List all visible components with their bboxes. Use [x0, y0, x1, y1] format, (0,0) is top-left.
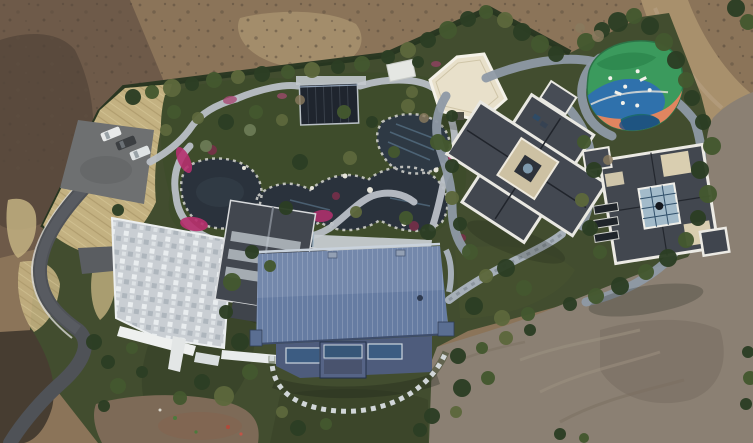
tree	[586, 162, 602, 178]
tree	[588, 288, 604, 304]
tree	[497, 12, 513, 28]
tree	[264, 260, 276, 272]
se-wing-roof	[700, 228, 729, 256]
tree	[548, 46, 564, 62]
tree	[295, 95, 305, 105]
tree	[460, 11, 476, 27]
shrub	[110, 378, 126, 394]
tree	[185, 77, 199, 91]
skylight-cream	[605, 171, 625, 187]
tree	[531, 35, 549, 53]
tree	[388, 146, 400, 158]
right-step-roof	[438, 322, 454, 336]
tree	[465, 297, 483, 315]
shrub	[126, 342, 138, 354]
shrub	[86, 334, 102, 350]
shrub	[554, 428, 566, 440]
debris	[226, 425, 230, 429]
skylight-cream	[660, 151, 691, 177]
tree	[350, 206, 362, 218]
tree	[231, 70, 245, 84]
tree	[445, 191, 459, 205]
tree	[214, 386, 234, 406]
tree	[173, 391, 187, 405]
roof-vent	[417, 295, 423, 301]
tree	[608, 12, 628, 32]
tree	[521, 307, 535, 321]
tree	[206, 72, 222, 88]
tree	[320, 418, 332, 430]
tree	[412, 56, 424, 68]
tree	[381, 50, 395, 64]
tree	[695, 114, 711, 130]
tree	[279, 201, 293, 215]
tree	[219, 305, 233, 319]
tree	[699, 185, 717, 203]
tree	[626, 8, 642, 24]
tree	[242, 364, 258, 380]
tree	[331, 60, 345, 74]
left-step-roof	[250, 330, 262, 346]
tree	[678, 72, 694, 88]
shrub	[579, 433, 589, 443]
tree	[450, 406, 462, 418]
tree	[218, 114, 234, 130]
shrub	[112, 204, 124, 216]
tree	[479, 269, 493, 283]
shrub	[98, 400, 110, 412]
debris	[173, 416, 177, 420]
tree	[445, 159, 459, 173]
tree	[245, 245, 259, 259]
tree	[290, 420, 306, 436]
tree	[413, 423, 427, 437]
roof-vent	[396, 250, 405, 256]
tree	[281, 65, 295, 79]
bay-panel	[324, 360, 362, 374]
tree	[254, 66, 270, 82]
tree	[249, 105, 263, 119]
tree	[337, 105, 351, 119]
tree	[420, 224, 436, 240]
tree	[160, 124, 172, 136]
tree	[481, 371, 495, 385]
tree	[582, 220, 598, 236]
window-glass	[368, 344, 402, 359]
tree	[524, 324, 536, 336]
tree	[641, 17, 659, 35]
tree	[194, 374, 210, 390]
tree	[343, 151, 357, 165]
tree	[638, 264, 654, 280]
tree	[366, 116, 378, 128]
debris	[239, 432, 242, 435]
tree	[690, 210, 706, 226]
tree	[575, 193, 589, 207]
tree	[439, 21, 457, 39]
pavilion	[299, 83, 358, 125]
tree	[304, 62, 320, 78]
tree	[163, 79, 181, 97]
tree	[593, 245, 607, 259]
tree	[703, 137, 721, 155]
tree	[446, 110, 458, 122]
window-glass	[286, 348, 320, 363]
tree	[440, 140, 452, 152]
tree	[244, 124, 256, 136]
shrub	[136, 366, 148, 378]
tree	[200, 140, 212, 152]
tree	[494, 310, 510, 326]
tree	[167, 105, 181, 119]
tree	[223, 273, 241, 291]
tree	[292, 154, 308, 170]
tree	[419, 113, 429, 123]
tree	[401, 99, 415, 113]
tree	[231, 333, 249, 351]
aerial-photo	[0, 0, 753, 443]
tree	[400, 42, 416, 58]
parking-wear	[80, 156, 132, 184]
tree	[192, 112, 204, 124]
tree	[592, 30, 604, 42]
tree	[659, 249, 677, 267]
tree	[424, 408, 440, 424]
tree	[497, 259, 515, 277]
tree	[499, 331, 513, 345]
tree	[667, 51, 685, 69]
tree	[276, 406, 288, 418]
tree	[125, 89, 141, 105]
shrub	[101, 355, 115, 369]
tree	[450, 348, 466, 364]
tree	[406, 86, 418, 98]
debris	[194, 430, 197, 433]
tree	[684, 90, 700, 106]
tree	[678, 232, 694, 248]
tree	[575, 23, 585, 33]
tree	[516, 280, 532, 296]
tree	[513, 23, 531, 41]
roof-seams	[256, 246, 449, 344]
bay-glass	[324, 345, 362, 358]
tree	[420, 32, 436, 48]
tree	[655, 33, 673, 51]
tree	[691, 161, 709, 179]
tree	[563, 297, 577, 311]
tree	[145, 85, 159, 99]
roof-vent	[328, 252, 337, 258]
tree	[603, 155, 613, 165]
tree	[611, 277, 629, 295]
tree	[476, 342, 488, 354]
shrub	[740, 398, 752, 410]
tree	[462, 244, 478, 260]
tree	[453, 217, 467, 231]
tree	[453, 379, 471, 397]
tree	[399, 211, 413, 225]
tree	[354, 56, 370, 72]
tree	[276, 114, 288, 126]
tree	[479, 5, 493, 19]
debris	[159, 409, 162, 412]
tree	[577, 135, 591, 149]
